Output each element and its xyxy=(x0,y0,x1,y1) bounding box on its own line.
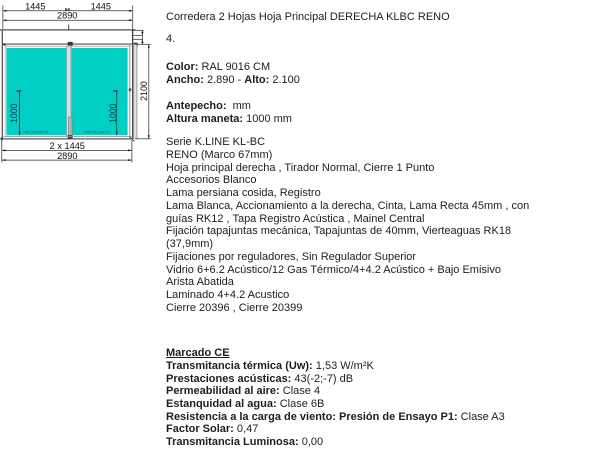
svg-text:2890: 2890 xyxy=(57,151,77,161)
svg-text:2 x 1445: 2 x 1445 xyxy=(50,141,85,151)
svg-text:KLBC_KB_HAND_00: KLBC_KB_HAND_00 xyxy=(84,130,109,134)
svg-text:2100: 2100 xyxy=(139,81,149,101)
svg-text:1445: 1445 xyxy=(91,1,111,11)
svg-text:2890: 2890 xyxy=(57,11,77,21)
svg-text:1445: 1445 xyxy=(25,1,45,11)
svg-text:1000: 1000 xyxy=(108,103,118,123)
svg-text:KLBC_KB_HAND_00: KLBC_KB_HAND_00 xyxy=(23,130,48,134)
svg-text:1000: 1000 xyxy=(9,103,19,123)
